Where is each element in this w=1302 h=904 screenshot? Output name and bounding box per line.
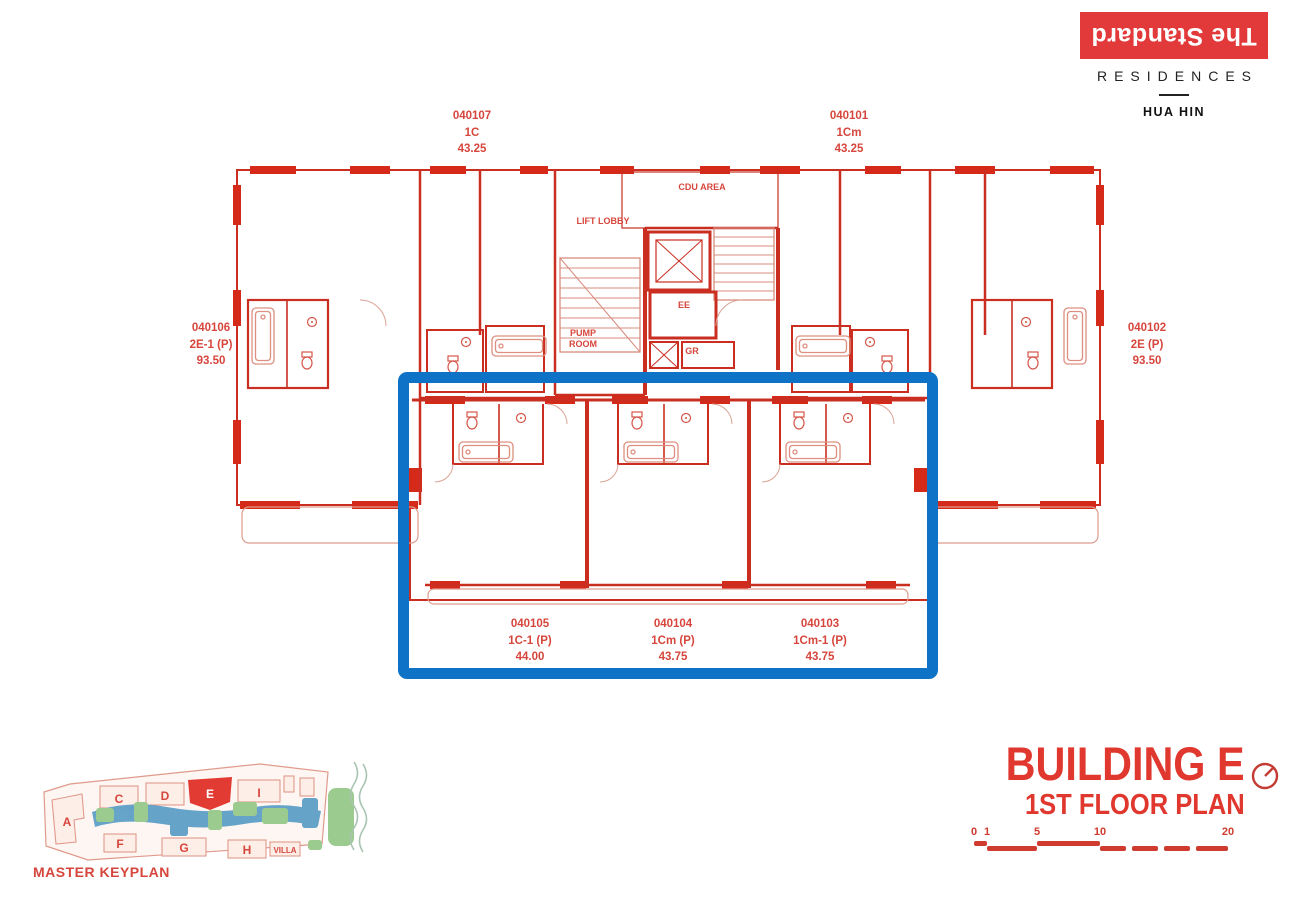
keyplan-title: MASTER KEYPLAN — [33, 864, 170, 880]
unit-label-040107: 040107 1C 43.25 — [407, 108, 537, 158]
keyplan-letter-g: G — [179, 841, 188, 855]
stair-core — [714, 228, 774, 300]
room-label-lift-lobby: LIFT LOBBY — [576, 216, 630, 227]
scale-tick-20: 20 — [1222, 826, 1234, 838]
brand-divider — [1159, 94, 1189, 96]
scale-bar: 0 1 5 10 20 — [966, 824, 1244, 862]
page: The Standard RESIDENCES HUA HIN — [0, 0, 1302, 904]
unit-label-040102: 040102 2E (P) 93.50 — [1082, 320, 1212, 370]
compass-icon — [1249, 758, 1283, 792]
scale-tick-0: 0 — [971, 826, 977, 838]
scale-tick-1: 1 — [984, 826, 990, 838]
unit-label-040104: 040104 1Cm (P) 43.75 — [608, 616, 738, 666]
master-keyplan: A C D E I F G H VILLA — [30, 748, 375, 873]
unit-id: 040107 — [407, 108, 537, 125]
scale-tick-5: 5 — [1034, 826, 1040, 838]
unit-area: 44.00 — [465, 649, 595, 666]
lift-shaft — [648, 232, 710, 290]
keyplan-letter-c: C — [115, 792, 124, 806]
unit-type: 1Cm — [784, 125, 914, 142]
brand-logo-text: The Standard — [1091, 21, 1257, 50]
scale-tick-10: 10 — [1094, 826, 1106, 838]
brand-logo: The Standard — [1080, 12, 1268, 59]
building-title-text: BUILDING E — [1006, 736, 1245, 791]
unit-type: 1C — [407, 125, 537, 142]
building-title: BUILDING E — [955, 736, 1245, 791]
scale-bar-segments — [974, 841, 1228, 851]
room-label-ee: EE — [664, 300, 704, 311]
unit-type: 1Cm (P) — [608, 633, 738, 650]
floor-title-text: 1ST FLOOR PLAN — [1025, 789, 1245, 822]
unit-id: 040103 — [755, 616, 885, 633]
room-label-pump-room: PUMP ROOM — [560, 328, 606, 351]
unit-label-040105: 040105 1C-1 (P) 44.00 — [465, 616, 595, 666]
keyplan-villa-label: VILLA — [273, 846, 296, 855]
unit-label-040103: 040103 1Cm-1 (P) 43.75 — [755, 616, 885, 666]
keyplan-letter-h: H — [243, 843, 252, 857]
floor-title: 1ST FLOOR PLAN — [955, 789, 1245, 822]
unit-type: 1Cm-1 (P) — [755, 633, 885, 650]
unit-label-040106: 040106 2E-1 (P) 93.50 — [146, 320, 276, 370]
unit-id: 040106 — [146, 320, 276, 337]
keyplan-letter-a: A — [63, 815, 72, 829]
unit-id: 040101 — [784, 108, 914, 125]
unit-id: 040105 — [465, 616, 595, 633]
unit-area: 43.75 — [755, 649, 885, 666]
unit-id: 040102 — [1082, 320, 1212, 337]
room-label-cdu-area: CDU AREA — [662, 182, 742, 193]
unit-area: 43.25 — [784, 141, 914, 158]
room-label-gr: GR — [672, 346, 712, 357]
unit-area: 43.75 — [608, 649, 738, 666]
unit-id: 040104 — [608, 616, 738, 633]
unit-type: 2E (P) — [1082, 337, 1212, 354]
keyplan-letter-d: D — [161, 789, 170, 803]
unit-label-040101: 040101 1Cm 43.25 — [784, 108, 914, 158]
keyplan-letter-i: I — [257, 786, 260, 800]
unit-area: 93.50 — [1082, 353, 1212, 370]
unit-area: 93.50 — [146, 353, 276, 370]
keyplan-letter-f: F — [116, 837, 123, 851]
brand-residences-label: RESIDENCES — [1078, 68, 1270, 84]
keyplan-letter-e: E — [206, 787, 214, 801]
unit-area: 43.25 — [407, 141, 537, 158]
unit-type: 1C-1 (P) — [465, 633, 595, 650]
unit-type: 2E-1 (P) — [146, 337, 276, 354]
